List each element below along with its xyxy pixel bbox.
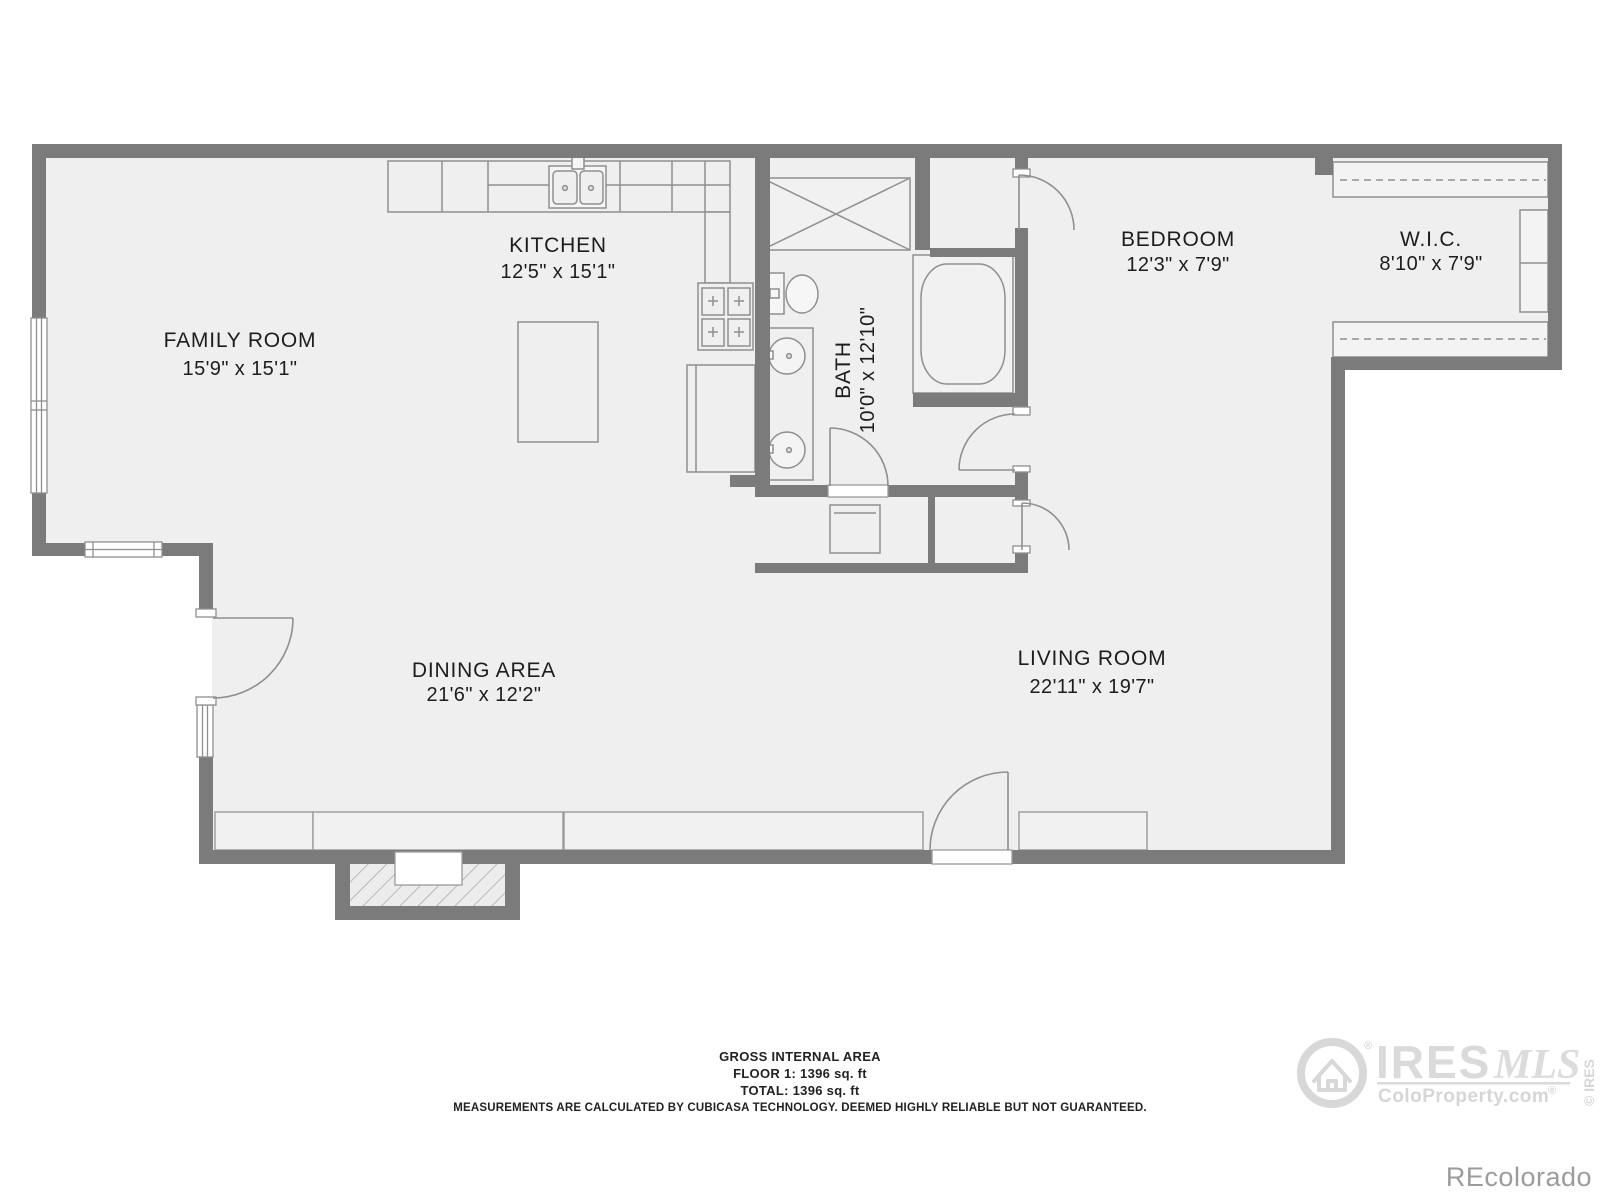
- door-threshold: [828, 485, 888, 497]
- floor-area: [46, 158, 1548, 850]
- window-sill: [215, 812, 313, 850]
- footer: GROSS INTERNAL AREA FLOOR 1: 1396 sq. ft…: [453, 1049, 1147, 1114]
- wall-bath-bottom: [888, 485, 1028, 497]
- wall-wic-notch: [1315, 158, 1333, 175]
- wall-bath-bottom: [755, 485, 828, 497]
- room-dims-dining: 21'6" x 12'2": [427, 684, 542, 706]
- footer-gross-area: GROSS INTERNAL AREA: [719, 1049, 881, 1064]
- door-jamb: [196, 609, 216, 617]
- washer: [830, 505, 880, 553]
- ires-logo-ring: [1301, 1042, 1363, 1104]
- shower: [757, 178, 910, 250]
- cooktop: [698, 283, 753, 350]
- ires-watermark: ® IRES MLS ColoProperty.com ® © IRES: [1301, 1036, 1597, 1107]
- wall-shower-divider: [915, 158, 930, 250]
- bumpout-wall-bottom: [335, 906, 520, 920]
- ires-registered-mark: ®: [1364, 1040, 1372, 1052]
- room-dims-family: 15'9" x 15'1": [183, 358, 298, 380]
- wall-bedroom-closet-bottom: [930, 248, 1028, 257]
- room-label-dining: DINING AREA: [412, 659, 556, 682]
- window-sill: [313, 812, 563, 850]
- wall-wic-right: [1548, 144, 1562, 370]
- wall-bottom: [1012, 850, 1344, 864]
- wall-dining-left: [199, 543, 213, 617]
- door-threshold: [932, 850, 1012, 864]
- wall-tub-stub: [913, 393, 1028, 407]
- bathtub: [913, 255, 1013, 393]
- fireplace-insert: [395, 852, 462, 885]
- wall-bath-west: [755, 158, 770, 497]
- refrigerator: [687, 365, 755, 472]
- wall-living-right: [1331, 357, 1345, 864]
- wall-east: [1015, 228, 1028, 415]
- ires-house-icon: [1314, 1061, 1350, 1090]
- ires-underline: [1377, 1082, 1570, 1085]
- toilet: [766, 273, 818, 314]
- wall-stub-kitchen: [730, 475, 755, 487]
- wall-dining-left: [199, 757, 213, 864]
- ires-text: IRES: [1376, 1036, 1491, 1088]
- wall-closet-bottom: [755, 563, 1022, 573]
- door-jamb: [1013, 466, 1030, 472]
- wall-top: [32, 144, 1562, 158]
- kitchen-island: [518, 322, 598, 442]
- window-left-wall: [31, 318, 47, 493]
- room-label-kitchen: KITCHEN: [509, 234, 607, 257]
- coloproperty-registered: ®: [1548, 1085, 1556, 1097]
- footer-disclaimer: MEASUREMENTS ARE CALCULATED BY CUBICASA …: [453, 1102, 1147, 1114]
- recolorado-watermark: REcolorado: [1446, 1162, 1592, 1192]
- window-sill: [1019, 812, 1147, 850]
- room-label-family: FAMILY ROOM: [164, 329, 317, 352]
- footer-floor1: FLOOR 1: 1396 sq. ft: [733, 1066, 867, 1081]
- room-dims-kitchen: 12'5" x 15'1": [501, 261, 616, 283]
- room-label-wic: W.I.C.: [1400, 228, 1462, 251]
- wall-closet-divider: [928, 495, 935, 563]
- room-dims-bath: 10'0" x 12'10": [857, 307, 879, 433]
- wall-wic-bottom: [1331, 357, 1562, 370]
- ires-copyright-vertical: © IRES: [1581, 1059, 1597, 1106]
- closet-shelf-side: [1520, 210, 1548, 312]
- room-label-living: LIVING ROOM: [1018, 647, 1167, 670]
- room-dims-bedroom: 12'3" x 7'9": [1126, 254, 1229, 276]
- floor-plan-canvas: FAMILY ROOM 15'9" x 15'1" KITCHEN 12'5" …: [0, 0, 1600, 1200]
- room-dims-living: 22'11" x 19'7": [1030, 676, 1155, 698]
- room-dims-wic: 8'10" x 7'9": [1379, 253, 1482, 275]
- door-jamb: [1013, 407, 1030, 415]
- floor-plan-page: FAMILY ROOM 15'9" x 15'1" KITCHEN 12'5" …: [0, 0, 1600, 1200]
- window-family-bottom: [85, 542, 162, 557]
- coloproperty-text: ColoProperty.com: [1378, 1086, 1549, 1107]
- room-label-bath: BATH: [832, 341, 855, 399]
- room-label-bedroom: BEDROOM: [1121, 228, 1235, 251]
- mls-script-text: MLS: [1493, 1042, 1580, 1088]
- footer-total: TOTAL: 1396 sq. ft: [740, 1083, 859, 1098]
- window-sill: [564, 812, 923, 850]
- window-dining-left: [197, 705, 213, 757]
- wall-bottom: [199, 850, 932, 864]
